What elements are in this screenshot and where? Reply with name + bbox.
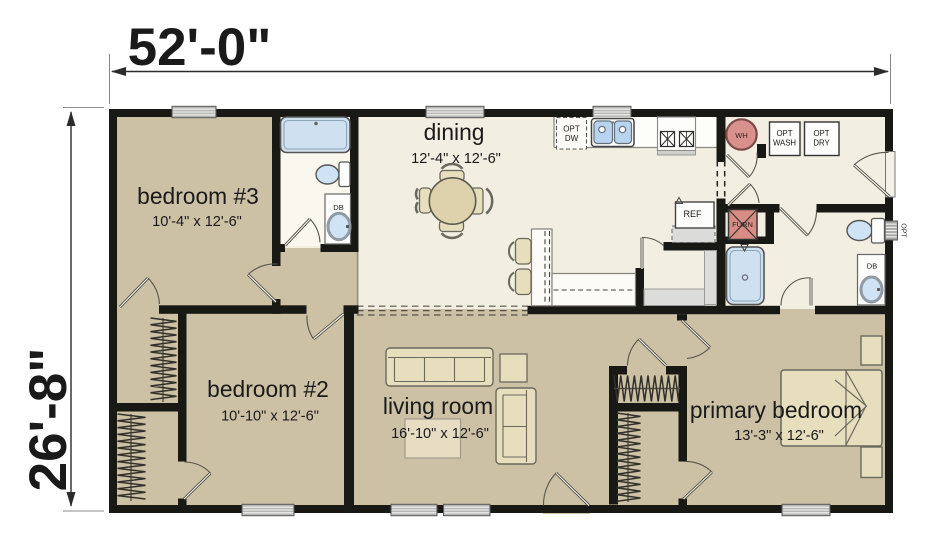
svg-text:16'-10" x 12'-6": 16'-10" x 12'-6" — [391, 426, 489, 442]
svg-text:primary bedroom: primary bedroom — [690, 397, 862, 423]
svg-text:DW: DW — [565, 134, 579, 143]
svg-text:52'-0": 52'-0" — [128, 18, 272, 77]
svg-text:OPT: OPT — [563, 125, 580, 134]
svg-text:WASH: WASH — [773, 139, 796, 148]
svg-text:13'-3" x 12'-6": 13'-3" x 12'-6" — [734, 428, 824, 444]
svg-text:DB: DB — [867, 262, 877, 271]
svg-text:DB: DB — [333, 203, 343, 212]
svg-text:OPT: OPT — [813, 129, 829, 138]
svg-text:10'-10" x 12'-6": 10'-10" x 12'-6" — [221, 409, 319, 425]
svg-text:living room: living room — [383, 393, 493, 419]
svg-text:FURN: FURN — [732, 220, 753, 229]
svg-text:DRY: DRY — [813, 139, 830, 148]
svg-text:bedroom #2: bedroom #2 — [207, 376, 329, 402]
svg-text:12'-4" x 12'-6": 12'-4" x 12'-6" — [411, 151, 501, 167]
svg-text:26'-8": 26'-8" — [19, 348, 78, 492]
svg-text:10'-4" x 12'-6": 10'-4" x 12'-6" — [152, 214, 242, 230]
svg-text:OPT: OPT — [900, 223, 907, 238]
svg-text:bedroom #3: bedroom #3 — [137, 183, 259, 209]
svg-text:dining: dining — [424, 119, 485, 145]
svg-text:OPT: OPT — [776, 129, 792, 138]
svg-text:WH: WH — [735, 131, 748, 140]
svg-text:REF: REF — [684, 209, 703, 219]
